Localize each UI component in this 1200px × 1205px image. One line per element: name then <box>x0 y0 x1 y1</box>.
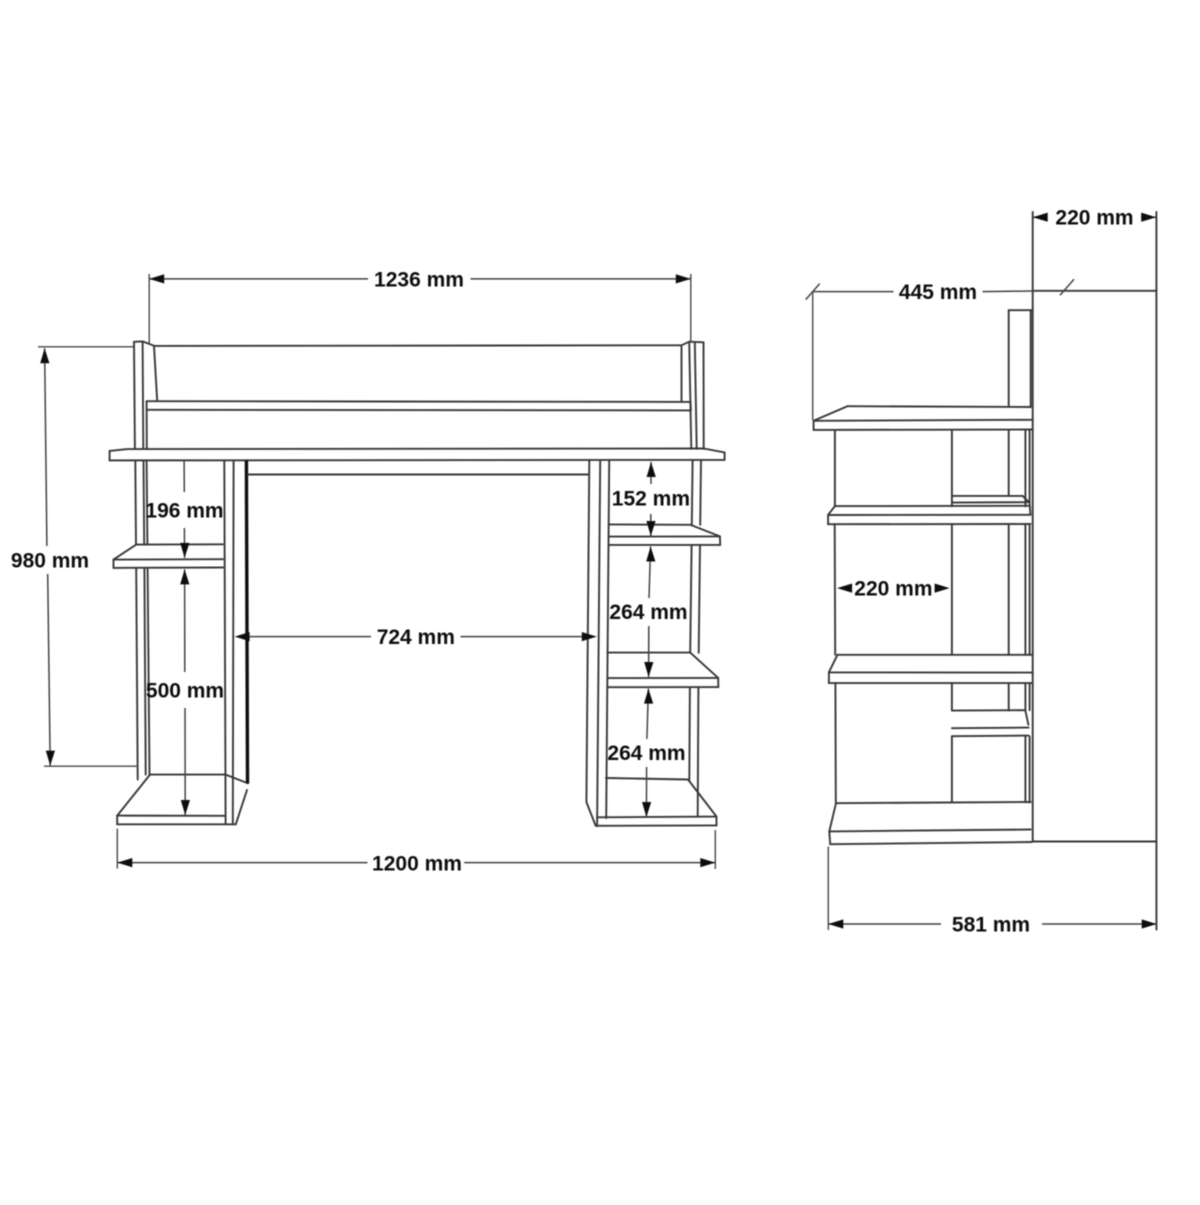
svg-text:1236 mm: 1236 mm <box>374 268 464 291</box>
svg-text:264 mm: 264 mm <box>607 742 685 765</box>
svg-text:1200 mm: 1200 mm <box>372 852 462 875</box>
svg-text:220 mm: 220 mm <box>1055 207 1133 230</box>
svg-text:724 mm: 724 mm <box>377 626 455 649</box>
svg-text:264 mm: 264 mm <box>609 601 687 624</box>
svg-text:980 mm: 980 mm <box>11 549 89 572</box>
svg-text:152 mm: 152 mm <box>612 488 690 511</box>
svg-text:196 mm: 196 mm <box>145 500 223 523</box>
svg-text:445 mm: 445 mm <box>899 281 977 304</box>
svg-text:581 mm: 581 mm <box>952 914 1030 937</box>
svg-text:500 mm: 500 mm <box>146 680 224 703</box>
svg-text:220 mm: 220 mm <box>854 578 932 601</box>
